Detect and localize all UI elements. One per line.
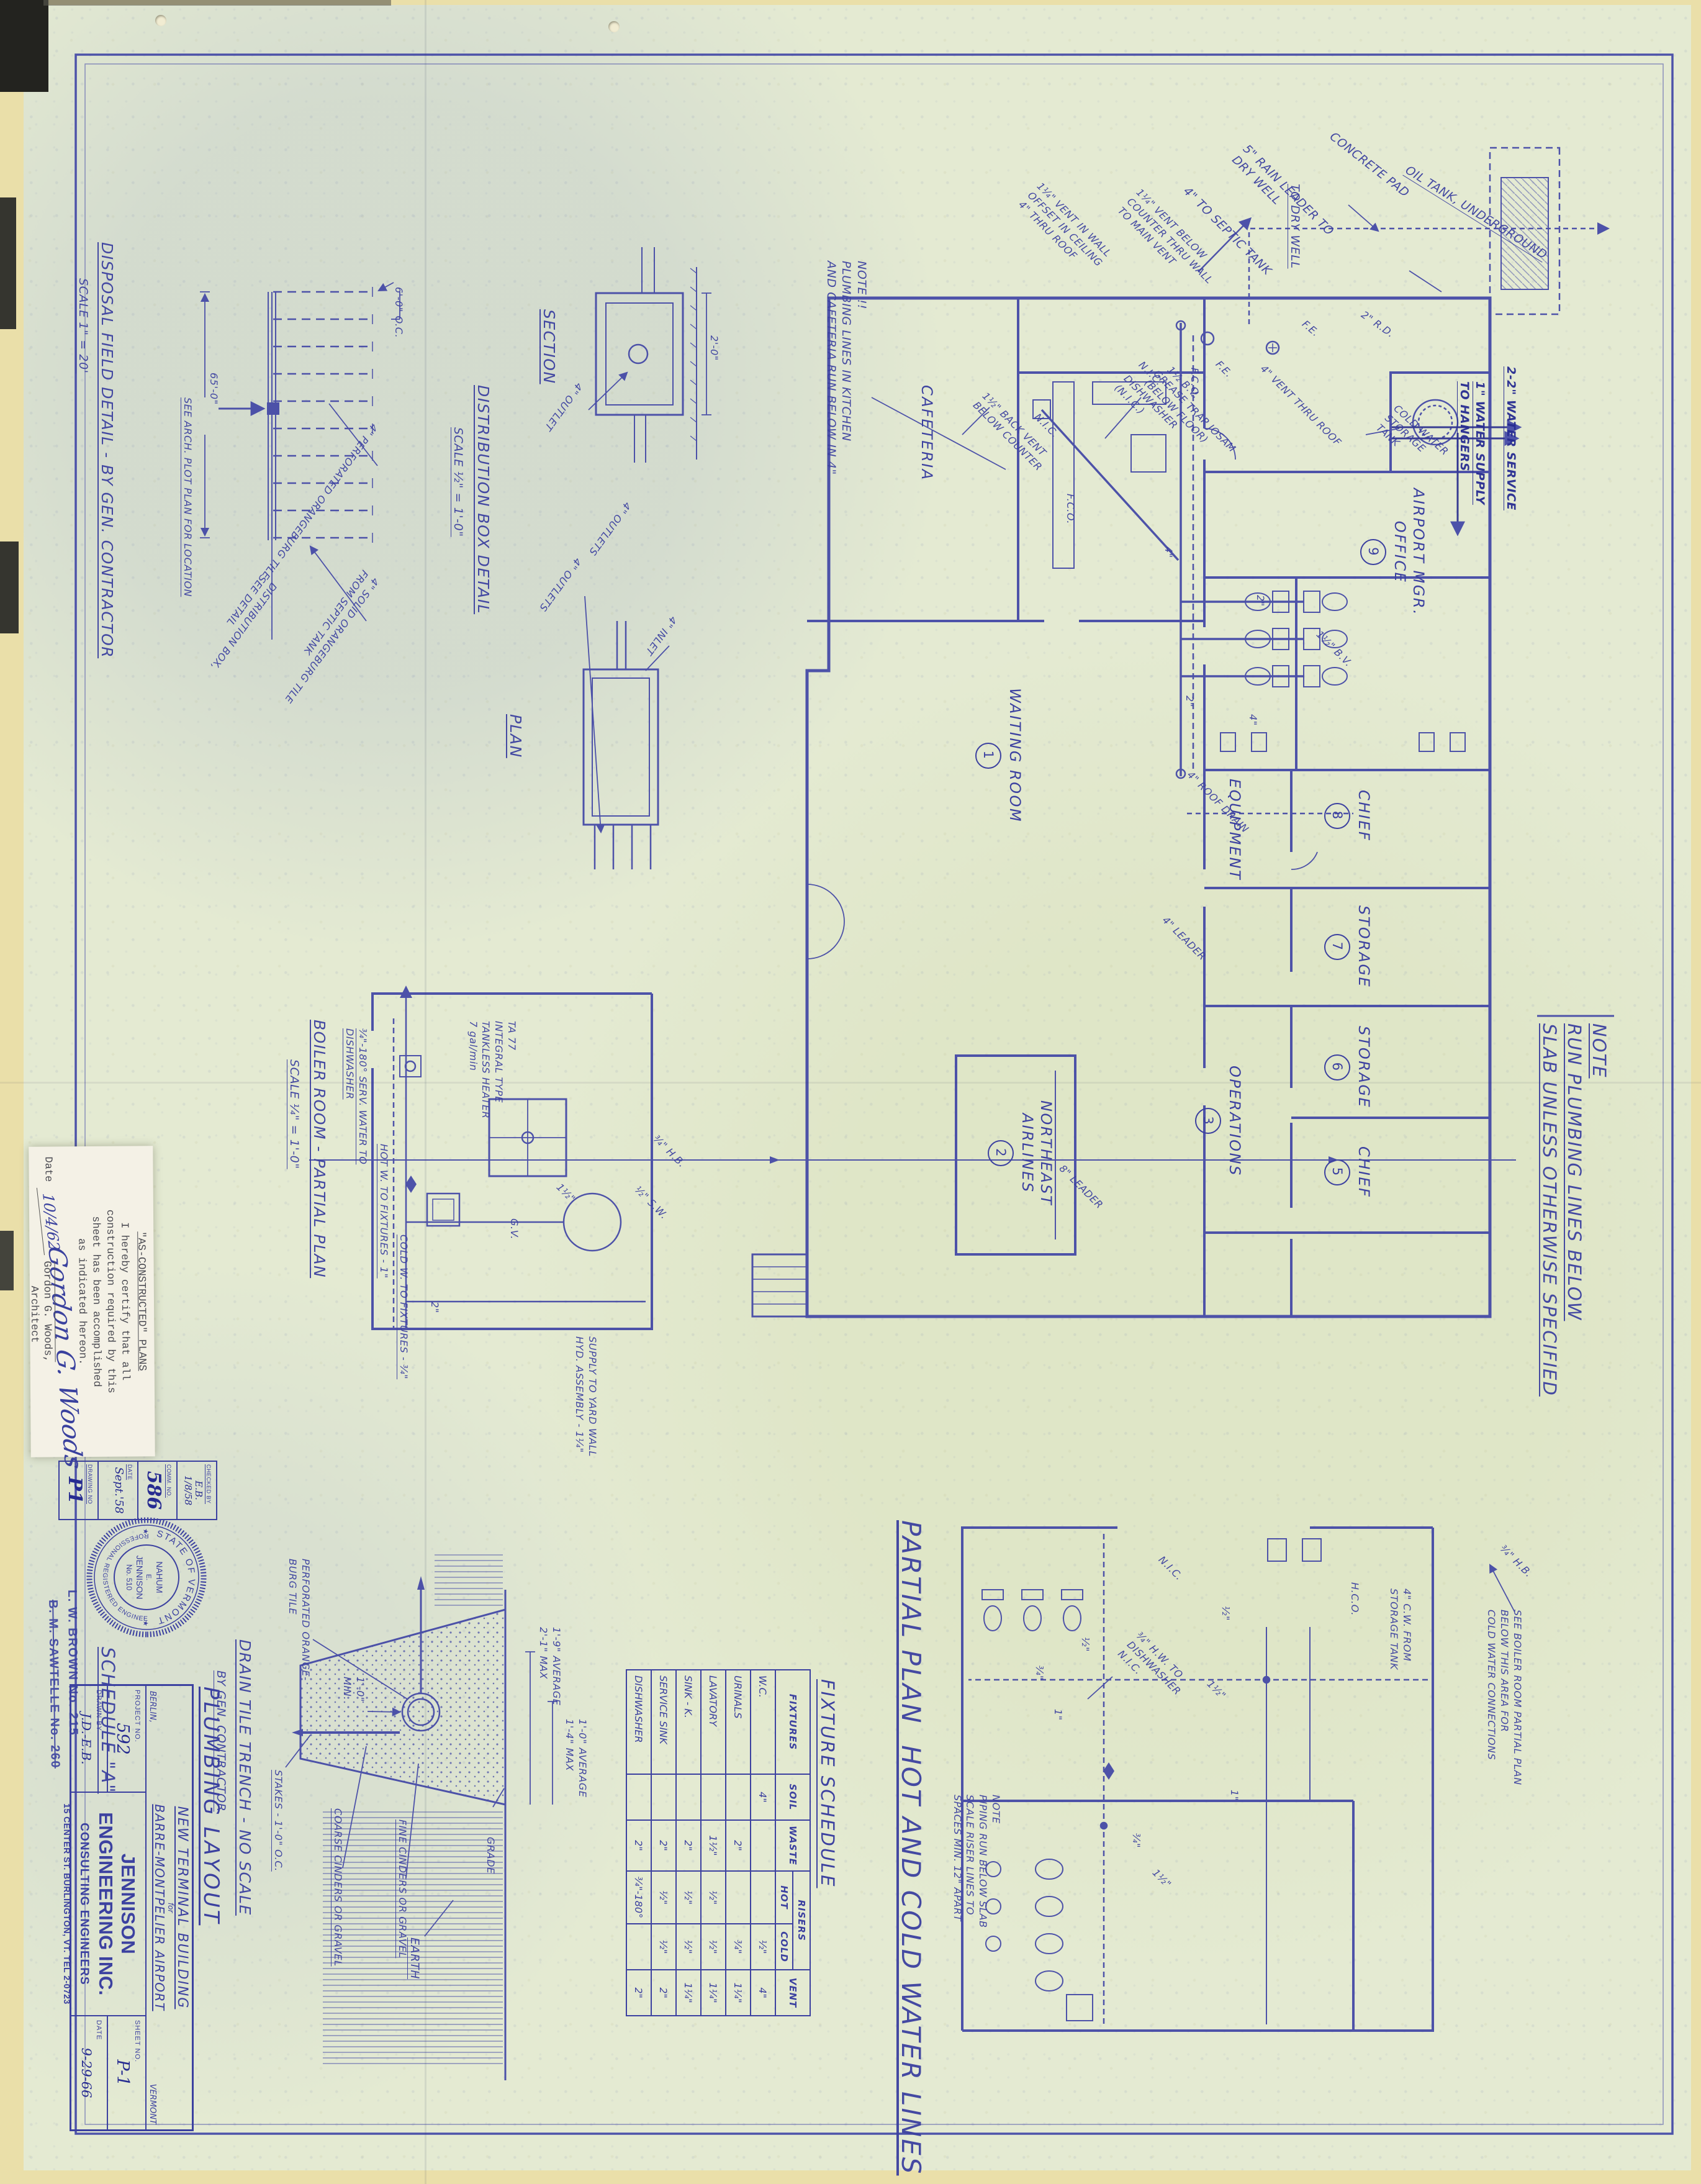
punch-hole-2: [608, 21, 620, 32]
drawing-no: P1: [65, 1464, 86, 1516]
cell-soil: [651, 1774, 676, 1820]
cell-cold: ¾": [726, 1924, 751, 1970]
cell-hot: ½": [676, 1871, 701, 1924]
col-vent: VENT: [775, 1970, 810, 2016]
comm-no-label: COMM. NO.: [166, 1464, 173, 1498]
cell-waste: 2": [676, 1820, 701, 1871]
col-fixtures: FIXTURES: [775, 1670, 810, 1774]
fixture-schedule-table: FIXTURES SOIL WASTE RISERS VENT HOT COLD…: [626, 1669, 811, 2016]
signed-name: Gordon G. Woods,: [39, 1261, 56, 1362]
cell-fixture: SINK - K.: [676, 1670, 701, 1774]
sheet-no-label: SHEET NO.: [133, 2020, 141, 2062]
fold-crease-horizontal: [0, 1082, 1701, 1084]
project-title: NEW TERMINAL BUILDING for BARRE-MONTPELI…: [145, 1686, 190, 2129]
title-block-right: SHEET NO. P-1 DATE 9-29-66: [70, 2015, 145, 2129]
col-soil: SOIL: [775, 1774, 810, 1820]
fixture-schedule: FIXTURE SCHEDULE FIXTURES SOIL WASTE RIS…: [626, 1669, 838, 2016]
room-name: EQUIPMENT: [1225, 779, 1244, 881]
room-label: NORTHEAST AIRLINES 2: [988, 1100, 1055, 1206]
cell-waste: 2": [651, 1820, 676, 1871]
cell-cold: ½": [651, 1924, 676, 1970]
col-waste: WASTE: [775, 1820, 810, 1871]
cell-hot: ¾"-180°: [626, 1871, 651, 1924]
room-number-badge: 7: [1324, 934, 1350, 960]
cell-soil: 4": [751, 1774, 775, 1820]
project-no-label: PROJECT NO.: [133, 1690, 141, 1742]
certification-line3: sheet has been accomplished: [88, 1155, 104, 1448]
firm-address: 15 CENTER ST. BURLINGTON, VT. TEL 2-0723: [62, 1793, 72, 2015]
engineer-seal: STATE OF VERMONT PROFESSIONAL REGISTERED…: [84, 1515, 209, 1639]
schedule-row: URINALS 2" ¾" 1¼": [726, 1670, 751, 2016]
edge-stamp-sawtelle: B. M. SAWTELLE No. 260: [45, 1600, 62, 1769]
room-name: STORAGE: [1355, 905, 1373, 988]
cell-soil: [701, 1774, 726, 1820]
room-label: STORAGE 7: [1324, 905, 1373, 988]
schedule-row: W.C. 4" ½" 4": [751, 1670, 775, 2016]
cell-fixture: W.C.: [751, 1670, 775, 1774]
drawing-title: PLUMBING LAYOUT: [199, 1687, 223, 1925]
drawn-by-label: DRAWN BY: [95, 1690, 102, 1731]
room-name: CHIEF: [1355, 790, 1373, 841]
room-label: CAFETERIA: [918, 385, 936, 481]
room-name: NORTHEAST AIRLINES: [1018, 1100, 1055, 1206]
cell-fixture: SERVICE SINK: [651, 1670, 676, 1774]
room-name: CAFETERIA: [918, 385, 936, 481]
room-number-badge: 6: [1324, 1054, 1350, 1081]
cell-fixture: DISHWASHER: [626, 1670, 651, 1774]
room-number-badge: 8: [1324, 803, 1350, 829]
scan-artifact-edge-3: [0, 1231, 14, 1290]
cell-waste: 2": [726, 1820, 751, 1871]
seal-star-right: ★: [142, 1620, 149, 1626]
certification-line1: I hereby certify that all: [115, 1155, 132, 1448]
title-block-left: PROJECT NO. 592 DRAWN BY J.D.-E.B.: [70, 1686, 145, 1793]
certification-note: "AS-CONSTRUCTED" PLANS I hereby certify …: [29, 1146, 155, 1457]
stamp-date-label: DATE: [126, 1464, 133, 1480]
cell-cold: [626, 1924, 651, 1970]
room-name: WAITING ROOM: [1006, 688, 1024, 823]
seal-name-2: E.: [145, 1574, 152, 1580]
project-for: for: [167, 1686, 174, 2129]
sheet-number: P-1: [113, 2020, 132, 2126]
cell-vent: 1¼": [726, 1970, 751, 2016]
firm-name: JENNISON ENGINEERING INC.: [94, 1793, 139, 2015]
scanned-blueprint-page: NOTERUN PLUMBING LINES BELOWSLAB UNLESS …: [0, 0, 1701, 2184]
certification-title: "AS-CONSTRUCTED" PLANS: [132, 1154, 148, 1448]
signed-title: Architect: [26, 1286, 41, 1343]
col-cold: COLD: [775, 1924, 793, 1970]
date-label: DATE: [95, 2020, 102, 2041]
punch-hole-1: [155, 15, 166, 26]
cell-soil: [676, 1774, 701, 1820]
scan-artifact-edge-1: [0, 197, 16, 329]
cell-vent: 4": [751, 1970, 775, 2016]
cell-fixture: URINALS: [726, 1670, 751, 1774]
drawn-by: J.D.-E.B.: [79, 1690, 94, 1788]
checked-by: E.B. 1/8/58: [183, 1464, 204, 1516]
cell-waste: 1½": [701, 1820, 726, 1871]
room-number-badge: 2: [988, 1140, 1014, 1166]
cell-vent: 2": [651, 1970, 676, 2016]
scan-artifact-top-strip: [43, 0, 391, 6]
schedule-row: LAVATORY 1½" ½" ½" 1¼": [701, 1670, 726, 2016]
scan-artifact-edge-2: [0, 541, 19, 633]
scan-artifact-corner: [0, 0, 48, 92]
seal-name-3: JENNISON: [135, 1556, 145, 1600]
project-city: BERLIN,: [148, 1691, 157, 1723]
cell-hot: [726, 1871, 751, 1924]
cell-hot: ½": [701, 1871, 726, 1924]
edge-stamp-brown: L. W. BROWN No. 215: [65, 1590, 80, 1736]
room-name: CHIEF: [1355, 1146, 1373, 1198]
date-value: 9-29-66: [79, 2020, 94, 2126]
drawing-landscape-frame: NOTERUN PLUMBING LINES BELOWSLAB UNLESS …: [0, 0, 1701, 2184]
cell-soil: [626, 1774, 651, 1820]
cell-vent: 2": [626, 1970, 651, 2016]
room-label: AIRPORT MGR. OFFICE 9: [1360, 488, 1428, 616]
firm-cell: JENNISON ENGINEERING INC. CONSULTING ENG…: [70, 1793, 145, 2015]
cert-date-label: Date: [42, 1156, 54, 1182]
room-number-badge: 9: [1360, 539, 1386, 565]
schedule-row: SINK - K. 2" ½" ½" 1¼": [676, 1670, 701, 2016]
cell-vent: 1¼": [701, 1970, 726, 2016]
cell-waste: [751, 1820, 775, 1871]
cell-waste: 2": [626, 1820, 651, 1871]
room-name: STORAGE: [1355, 1026, 1373, 1108]
project-line1: NEW TERMINAL BUILDING: [174, 1686, 190, 2129]
room-label: WAITING ROOM 1: [975, 688, 1024, 823]
checked-by-label: CHECKED BY: [205, 1464, 212, 1504]
cell-hot: ½": [651, 1871, 676, 1924]
room-label: CHIEF 8: [1324, 790, 1373, 841]
project-number: 592: [113, 1690, 132, 1788]
cell-cold: ½": [701, 1924, 726, 1970]
cell-soil: [726, 1774, 751, 1820]
seal-name-1: NAHUM: [155, 1561, 165, 1593]
room-label: EQUIPMENT: [1225, 779, 1244, 881]
cell-cold: ½": [751, 1924, 775, 1970]
project-line2: BARRE-MONTPELIER AIRPORT: [152, 1686, 167, 2129]
col-hot: HOT: [775, 1871, 793, 1924]
firm-type: CONSULTING ENGINEERS: [77, 1793, 91, 2015]
col-risers: RISERS: [793, 1871, 810, 1970]
room-number-badge: 1: [975, 743, 1001, 769]
schedule-row: SERVICE SINK 2" ½" ½" 2": [651, 1670, 676, 2016]
cell-hot: [751, 1871, 775, 1924]
comm-no: 586: [144, 1464, 165, 1516]
title-block: NEW TERMINAL BUILDING for BARRE-MONTPELI…: [70, 1684, 194, 2131]
cell-fixture: LAVATORY: [701, 1670, 726, 1774]
seal-star-left: ★: [142, 1528, 149, 1534]
seal-number: No. 510: [125, 1564, 133, 1590]
stamp-date: Sept.'58: [112, 1464, 125, 1516]
room-label: STORAGE 6: [1324, 1026, 1373, 1108]
schedule-row: DISHWASHER 2" ¾"-180° 2": [626, 1670, 651, 2016]
room-number-badge: 5: [1324, 1159, 1350, 1185]
room-label: CHIEF 5: [1324, 1146, 1373, 1198]
certification-line2: construction required by this: [102, 1155, 118, 1448]
room-number-badge: 3: [1195, 1108, 1221, 1134]
room-name: AIRPORT MGR. OFFICE: [1391, 488, 1428, 616]
schedule-title: FIXTURE SCHEDULE: [817, 1679, 838, 2016]
fold-crease-vertical: [425, 0, 426, 2184]
project-state: VERMONT: [148, 2084, 157, 2124]
rooms-layer: CAFETERIA WAITING ROOM 1 NORTHEAST AIRLI…: [0, 0, 1701, 2184]
cell-cold: ½": [676, 1924, 701, 1970]
cell-vent: 1¼": [676, 1970, 701, 2016]
